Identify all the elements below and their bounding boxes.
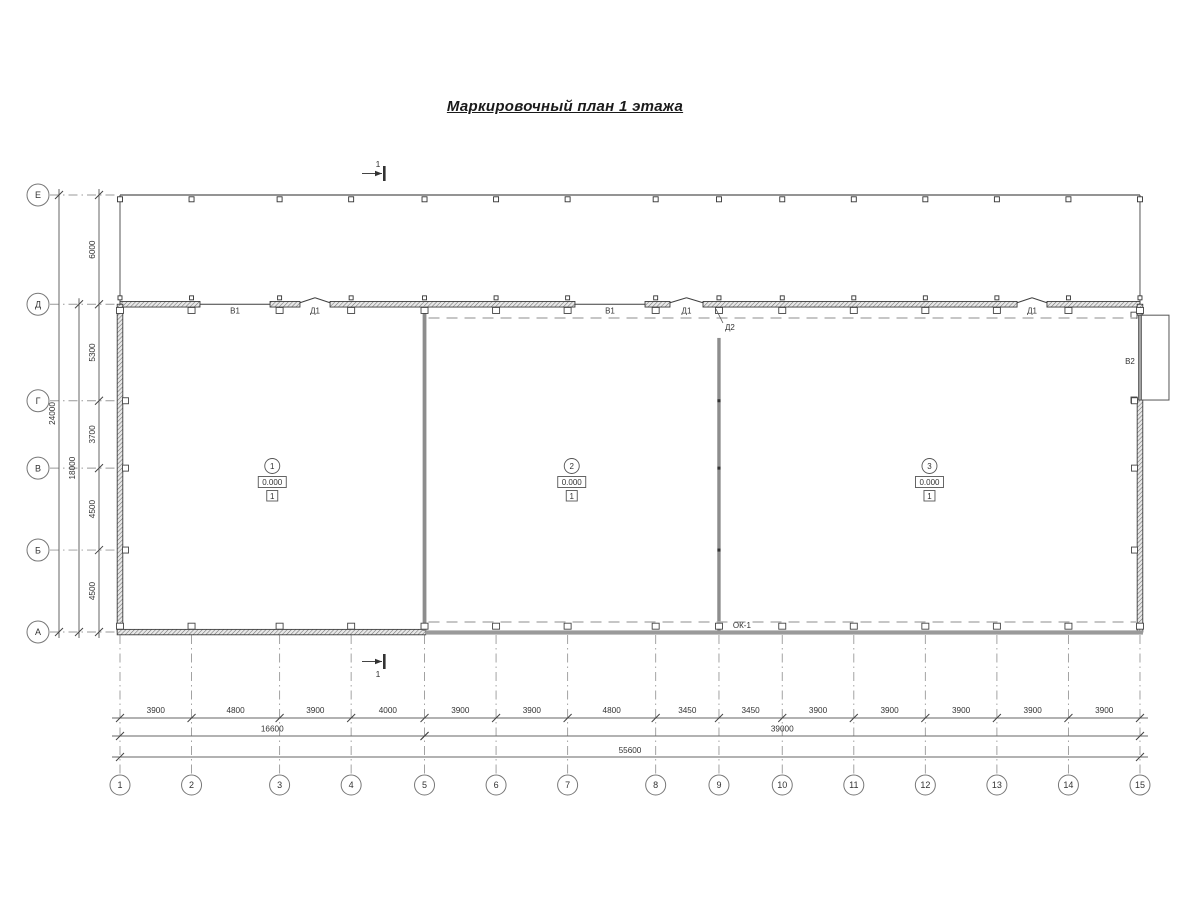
dim-value: 24000 [48, 402, 57, 425]
wall-column-marker [1131, 547, 1137, 553]
dim-value: 3900 [523, 706, 542, 715]
room-number: 1 [270, 462, 275, 471]
grid-bubble-label: 2 [189, 780, 194, 790]
dim-value: 55600 [619, 746, 642, 755]
canopy-column-marker [565, 197, 570, 202]
grid-bubble-label: 7 [565, 780, 570, 790]
grid-bubble-label: 8 [653, 780, 658, 790]
grid-bubble-label: 5 [422, 780, 427, 790]
pilaster-marker-below [1065, 307, 1072, 313]
door-leaf [670, 298, 687, 303]
dim-value: 4800 [226, 706, 245, 715]
labels: В1Д1В1Д1Д1Д2В2ОК-110.000120.000130.0001 [230, 307, 1135, 631]
partition-axis-9 [717, 338, 720, 631]
section-bar [383, 654, 386, 669]
dim-value: 3900 [1024, 706, 1043, 715]
room-floor-type: 1 [270, 492, 275, 501]
dim-value: 39000 [771, 725, 794, 734]
pilaster-marker-above [494, 296, 498, 300]
door-leaf [300, 298, 315, 303]
grid-bubble-label: В [35, 463, 41, 473]
canopy-column-marker [189, 197, 194, 202]
grid-lines [50, 195, 1140, 774]
pilaster-marker-above [923, 296, 927, 300]
pilaster-marker-below [993, 307, 1000, 313]
dim-value: 3900 [147, 706, 166, 715]
dimensions: 3900480039004000390039004800345034503900… [48, 189, 1148, 761]
pilaster-marker-below [188, 307, 195, 313]
opening-label-Д2: Д2 [725, 323, 735, 332]
pilaster-marker-below [276, 307, 283, 313]
pilaster-marker-above [423, 296, 427, 300]
dim-value: 5300 [88, 343, 97, 362]
section-arrow [375, 171, 382, 177]
room-marker-1: 10.0001 [258, 459, 286, 502]
pilaster-marker-above [118, 296, 122, 300]
dim-value: 6000 [88, 240, 97, 259]
pilaster-marker-above [995, 296, 999, 300]
pilaster-marker-above [780, 296, 784, 300]
pilaster-marker-bottom [493, 623, 500, 629]
grid-bubble-label: А [35, 627, 41, 637]
pilaster-marker-bottom [117, 623, 124, 629]
grid-bubble-label: 15 [1135, 780, 1145, 790]
bearing-wall-segment [645, 301, 670, 307]
bearing-wall-segment [330, 301, 575, 307]
opening-label-В1: В1 [230, 307, 240, 316]
dim-value: 3900 [306, 706, 325, 715]
pilaster-marker-bottom [1136, 623, 1143, 629]
pilaster-marker-below [117, 307, 124, 313]
wall-column-marker [1131, 398, 1137, 404]
pilaster-marker-above [278, 296, 282, 300]
gate-exterior-rect [1140, 315, 1169, 400]
pilaster-marker-above [852, 296, 856, 300]
canopy-column-marker [277, 197, 282, 202]
dim-value: 3900 [880, 706, 899, 715]
pilaster-marker-below [652, 307, 659, 313]
pilaster-marker-below [564, 307, 571, 313]
canopy-column-marker [994, 197, 999, 202]
canopy-column-marker [1066, 197, 1071, 202]
room-elevation: 0.000 [262, 478, 283, 487]
opening-label-Д1: Д1 [310, 307, 320, 316]
dim-value: 4800 [603, 706, 622, 715]
section-number: 1 [376, 159, 381, 169]
room-marker-3: 30.0001 [915, 459, 943, 502]
pilaster-marker-above [190, 296, 194, 300]
canopy-column-marker [349, 197, 354, 202]
bearing-wall-segment [1047, 301, 1140, 307]
pilaster-marker-bottom [715, 623, 722, 629]
canopy-column-marker [716, 197, 721, 202]
grid-bubble-label: 13 [992, 780, 1002, 790]
wall-column-marker [123, 547, 129, 553]
pilaster-marker-above [1138, 296, 1142, 300]
partition-column-dot [717, 399, 720, 402]
grid-bubble-label: 4 [349, 780, 354, 790]
pilaster-marker-bottom [348, 623, 355, 629]
bearing-wall-segment [270, 301, 300, 307]
canopy-column-marker [851, 197, 856, 202]
door-leaf [315, 298, 330, 303]
dim-value: 3450 [678, 706, 697, 715]
dim-value: 3900 [1095, 706, 1114, 715]
dim-value: 18000 [68, 456, 77, 479]
dim-value: 3700 [88, 425, 97, 444]
opening-label-Д1: Д1 [682, 307, 692, 316]
room-number: 3 [927, 462, 932, 471]
section-bar [383, 166, 386, 181]
grid-bubbles: 123456789101112131415ЕДГВБА [27, 184, 1150, 795]
grid-bubble-label: 1 [117, 780, 122, 790]
room-floor-type: 1 [927, 492, 932, 501]
section-marks: 11 [362, 159, 386, 679]
grid-bubble-label: 3 [277, 780, 282, 790]
bearing-wall-segment [120, 301, 200, 307]
room-floor-type: 1 [570, 492, 575, 501]
pilaster-marker-above [717, 296, 721, 300]
pilaster-marker-bottom [779, 623, 786, 629]
canopy-column-marker [923, 197, 928, 202]
grid-bubble-label: Д [35, 299, 41, 309]
canopy-column-marker [653, 197, 658, 202]
pilaster-marker-bottom [652, 623, 659, 629]
door-leaf [1032, 298, 1047, 303]
pilaster-marker-below [922, 307, 929, 313]
grid-bubble-label: 6 [494, 780, 499, 790]
dim-value: 4000 [379, 706, 398, 715]
section-arrow [375, 659, 382, 665]
bearing-wall-segment [703, 301, 1017, 307]
floor-plan-svg: 3900480039004000390039004800345034503900… [0, 0, 1200, 900]
grid-bubble-label: 14 [1063, 780, 1073, 790]
room-marker-2: 20.0001 [558, 459, 586, 502]
section-number: 1 [376, 669, 381, 679]
pilaster-marker-below [1136, 307, 1143, 313]
canopy-column-marker [780, 197, 785, 202]
pilaster-marker-below [421, 307, 428, 313]
grid-bubble-label: Г [36, 396, 41, 406]
opening-label-В1: В1 [605, 307, 615, 316]
grid-bubble-label: 12 [920, 780, 930, 790]
drawing-page: Маркировочный план 1 этажа 3900480039004… [0, 0, 1200, 900]
partition-column-dot [717, 467, 720, 470]
grid-bubble-label: Б [35, 545, 41, 555]
pilaster-marker-above [566, 296, 570, 300]
canopy-column-marker [494, 197, 499, 202]
bottom-wall-left [117, 629, 426, 634]
pilaster-marker-below [779, 307, 786, 313]
pilaster-marker-bottom [993, 623, 1000, 629]
dim-value: 3900 [451, 706, 470, 715]
room-elevation: 0.000 [919, 478, 940, 487]
bottom-wall-right [426, 630, 1143, 634]
pilaster-marker-below [348, 307, 355, 313]
canopy-column-marker [118, 197, 123, 202]
pilaster-marker-below [850, 307, 857, 313]
pilaster-marker-bottom [1065, 623, 1072, 629]
pilaster-marker-bottom [421, 623, 428, 629]
wall-column-marker [123, 398, 129, 404]
wall-column-marker [123, 465, 129, 471]
grid-bubble-label: 10 [777, 780, 787, 790]
opening-label-Д1: Д1 [1027, 307, 1037, 316]
canopy-column-marker [422, 197, 427, 202]
dim-value: 3450 [742, 706, 761, 715]
grid-bubble-label: Е [35, 190, 41, 200]
partition-column-dot [717, 549, 720, 552]
pilaster-marker-above [1066, 296, 1070, 300]
partition-axis-5 [423, 306, 427, 631]
pilaster-marker-above [654, 296, 658, 300]
opening-label-ОК-1: ОК-1 [733, 621, 752, 630]
pilaster-marker-bottom [276, 623, 283, 629]
opening-label-В2: В2 [1125, 357, 1135, 366]
pilaster-marker-bottom [922, 623, 929, 629]
grid-bubble-label: 9 [716, 780, 721, 790]
pilaster-marker-bottom [850, 623, 857, 629]
pilaster-marker-below [493, 307, 500, 313]
room-elevation: 0.000 [562, 478, 583, 487]
pilaster-marker-bottom [564, 623, 571, 629]
left-wall [117, 304, 123, 632]
room-number: 2 [570, 462, 575, 471]
dim-value: 4500 [88, 581, 97, 600]
canopy-column-marker [1137, 197, 1142, 202]
dim-value: 16600 [261, 725, 284, 734]
pilaster-marker-above [349, 296, 353, 300]
right-wall-lower [1137, 400, 1143, 632]
dim-value: 4500 [88, 500, 97, 519]
dim-value: 3900 [809, 706, 828, 715]
door-leaf [686, 298, 703, 303]
grid-bubble-label: 11 [849, 780, 858, 790]
building [117, 195, 1169, 635]
wall-column-marker [1131, 465, 1137, 471]
dim-value: 3900 [952, 706, 971, 715]
pilaster-marker-bottom [188, 623, 195, 629]
door-leaf [1017, 298, 1032, 303]
